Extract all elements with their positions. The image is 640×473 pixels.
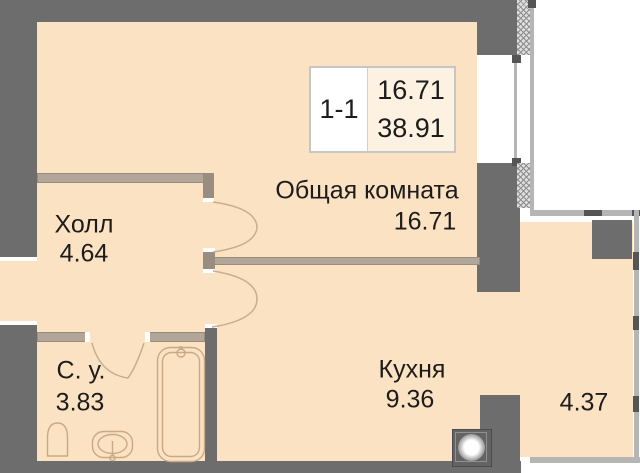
vent-shaft xyxy=(452,429,492,467)
unit-title-block: 1-1 16.71 38.91 xyxy=(309,66,456,153)
door-arc-hall-kitchen xyxy=(212,271,257,327)
unit-total-area: 38.91 xyxy=(377,113,445,144)
room-loggia-area: 4.37 xyxy=(560,391,609,416)
room-hall-area: 4.64 xyxy=(60,242,109,267)
bathtub-outline xyxy=(158,348,205,462)
door-arc-hall-living xyxy=(213,202,257,252)
unit-areas: 16.71 38.91 xyxy=(368,68,454,151)
room-bathroom-area: 3.83 xyxy=(56,391,105,416)
room-living-area: 16.71 xyxy=(394,210,457,235)
unit-living-area: 16.71 xyxy=(377,75,445,106)
unit-number: 1-1 xyxy=(311,68,368,151)
room-living-label: Общая комната xyxy=(275,179,458,204)
bathtub-inner xyxy=(163,353,200,457)
room-bathroom-label: С. у. xyxy=(57,359,106,384)
vent-shaft-circle xyxy=(458,434,485,461)
toilet-outline xyxy=(48,423,68,456)
room-kitchen-label: Кухня xyxy=(379,358,446,383)
floor-plan: 1-1 16.71 38.91 Холл 4.64 Общая комната … xyxy=(0,0,640,473)
room-kitchen-area: 9.36 xyxy=(386,388,435,413)
room-hall-label: Холл xyxy=(55,213,114,238)
